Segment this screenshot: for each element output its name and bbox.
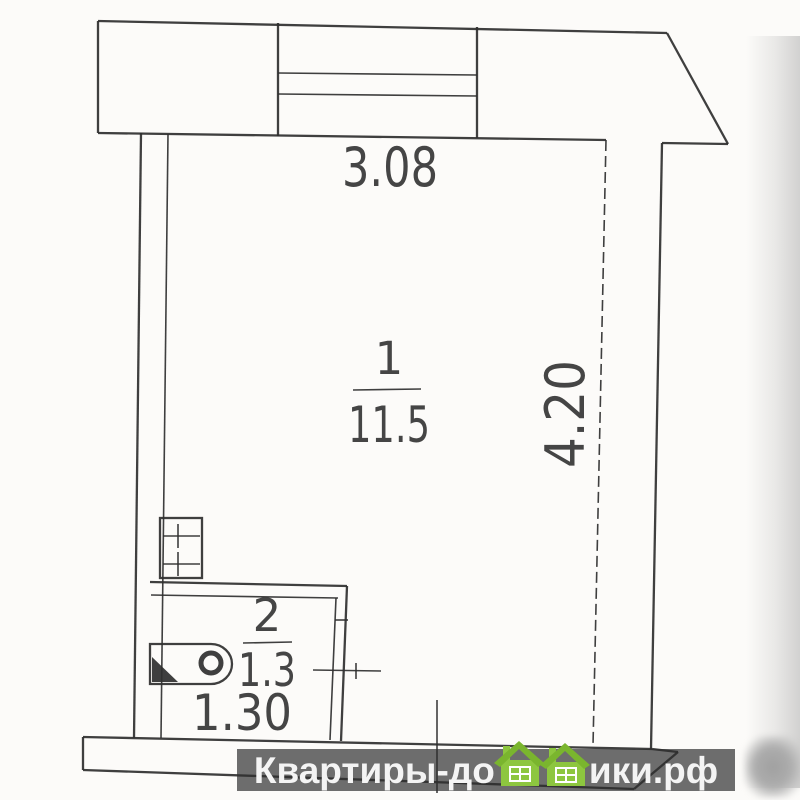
window-line-1 — [278, 73, 477, 75]
balcony-diagonal-wall — [667, 33, 728, 144]
floorplan-drawing: 3.08 4.20 1 11.5 2 1.3 1.30 — [0, 0, 800, 800]
left-wall-inner — [161, 134, 168, 738]
stove-icon — [160, 518, 202, 578]
room1-number: 1 — [375, 332, 404, 385]
floorplan-page: 3.08 4.20 1 11.5 2 1.3 1.30 Квартиры-до — [0, 0, 800, 800]
bathroom-top-wall-inner — [151, 595, 338, 598]
sink-corner-triangle — [152, 657, 178, 682]
bathroom-right-wall-outer — [341, 586, 347, 741]
labels: 3.08 4.20 1 11.5 2 1.3 1.30 — [192, 136, 597, 742]
watermark-text-left: Квартиры-до — [254, 752, 495, 789]
watermark-text-right: ики.рф — [589, 752, 718, 789]
bathroom-dimension-line — [313, 670, 381, 671]
room2-number: 2 — [253, 589, 282, 642]
watermark: Квартиры-до ики.рф — [237, 749, 735, 791]
dimension-room2-width: 1.30 — [192, 684, 292, 742]
bathroom-top-wall-outer — [150, 582, 347, 586]
dimension-right-height: 4.20 — [534, 360, 597, 468]
balcony — [98, 21, 728, 144]
sink-drain-ring — [201, 653, 221, 673]
balcony-diagonal-base — [662, 143, 728, 144]
room1-area: 11.5 — [348, 396, 430, 454]
right-wall-outer — [651, 143, 662, 749]
stove-outline — [160, 518, 202, 578]
window-line-2 — [278, 94, 477, 96]
dimension-top-width: 3.08 — [342, 136, 438, 199]
room1-fraction-bar — [353, 389, 421, 390]
twin-houses-icon — [493, 736, 591, 790]
balcony-top-wall — [98, 21, 667, 33]
left-wall-outer — [134, 133, 141, 738]
scan-corner-artifact — [744, 736, 800, 798]
